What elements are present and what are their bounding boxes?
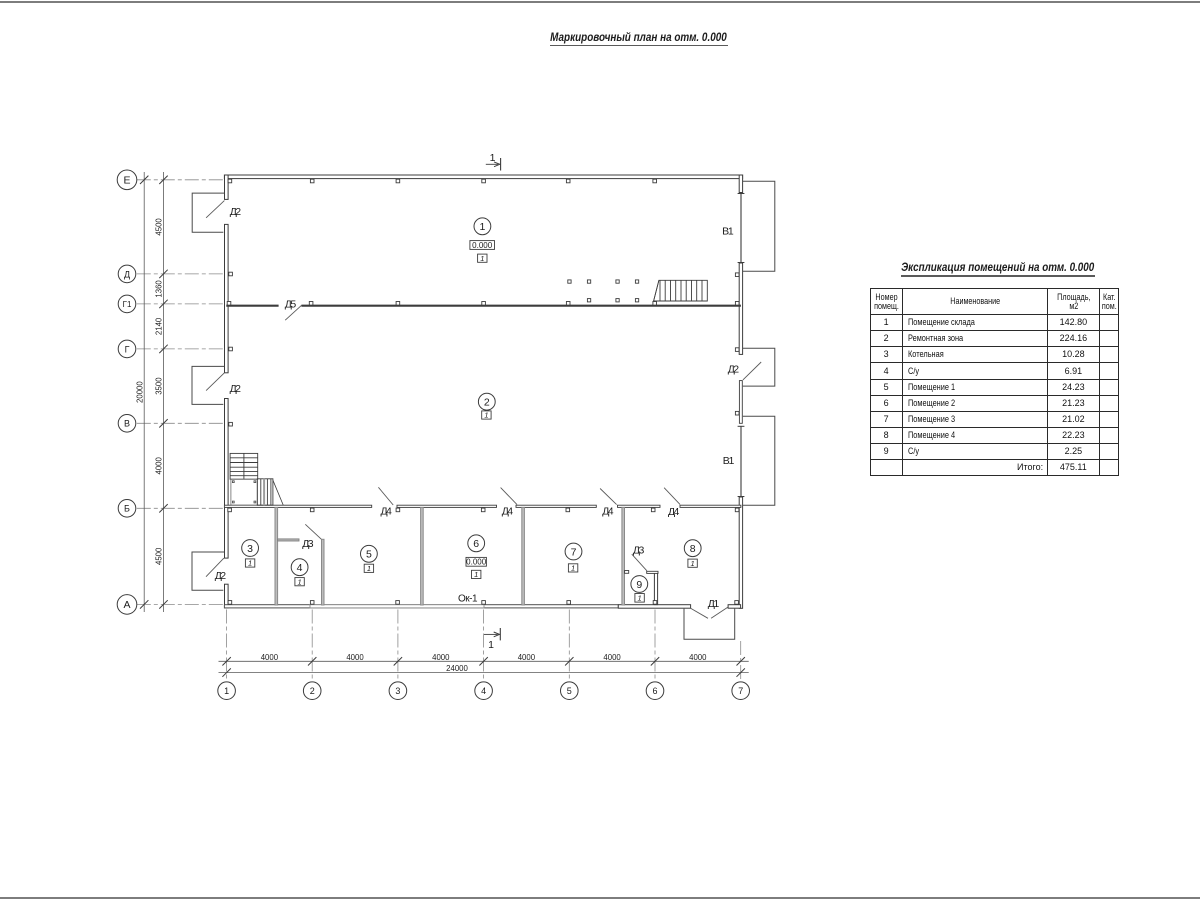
svg-text:Д2: Д2: [230, 383, 242, 395]
svg-text:1: 1: [638, 594, 642, 603]
svg-text:4500: 4500: [155, 547, 164, 565]
svg-text:1: 1: [224, 686, 229, 696]
svg-text:Е: Е: [123, 175, 130, 187]
svg-text:Г: Г: [125, 344, 130, 354]
svg-text:9: 9: [636, 579, 642, 591]
svg-text:1: 1: [298, 577, 302, 586]
svg-text:Д2: Д2: [728, 363, 740, 375]
svg-text:4000: 4000: [689, 653, 707, 662]
svg-text:Д1: Д1: [708, 598, 720, 610]
svg-text:4000: 4000: [603, 653, 621, 662]
svg-text:1: 1: [691, 559, 695, 568]
svg-text:1: 1: [474, 570, 478, 579]
svg-text:2140: 2140: [155, 317, 164, 335]
svg-text:Ок-1: Ок-1: [458, 594, 478, 605]
svg-text:4000: 4000: [261, 653, 279, 662]
svg-text:5: 5: [366, 549, 372, 561]
svg-text:6: 6: [473, 538, 479, 550]
svg-text:1: 1: [488, 639, 494, 651]
svg-text:Д3: Д3: [633, 544, 645, 556]
svg-text:А: А: [123, 599, 130, 611]
svg-text:1: 1: [367, 564, 371, 573]
svg-text:4000: 4000: [432, 653, 450, 662]
svg-text:0.000: 0.000: [472, 241, 493, 250]
svg-text:Д2: Д2: [215, 570, 227, 582]
svg-text:4000: 4000: [346, 653, 364, 662]
svg-text:4000: 4000: [518, 653, 536, 662]
svg-text:Д3: Д3: [302, 538, 314, 550]
svg-text:Д4: Д4: [602, 506, 614, 518]
svg-text:Д4: Д4: [502, 506, 514, 518]
svg-text:0.000: 0.000: [466, 558, 487, 567]
svg-text:2: 2: [310, 686, 315, 696]
svg-text:1: 1: [480, 254, 484, 263]
svg-text:В1: В1: [722, 225, 734, 237]
svg-text:6: 6: [652, 686, 657, 696]
svg-text:3500: 3500: [155, 377, 164, 395]
svg-text:1360: 1360: [155, 280, 164, 298]
svg-text:Д4: Д4: [381, 506, 393, 518]
svg-text:5: 5: [567, 686, 572, 696]
svg-text:3: 3: [395, 686, 400, 696]
svg-text:7: 7: [738, 686, 743, 696]
svg-text:В: В: [124, 419, 130, 429]
svg-text:4500: 4500: [155, 218, 164, 236]
svg-text:Г1: Г1: [123, 300, 132, 309]
svg-text:4: 4: [481, 686, 486, 696]
svg-text:Д4: Д4: [668, 506, 680, 518]
svg-text:4: 4: [297, 562, 303, 574]
svg-text:Д5: Д5: [285, 299, 297, 311]
svg-text:В1: В1: [723, 455, 735, 467]
svg-text:1: 1: [571, 564, 575, 573]
svg-text:3: 3: [247, 543, 253, 555]
svg-text:4000: 4000: [155, 456, 164, 474]
svg-text:7: 7: [571, 546, 577, 558]
svg-text:1: 1: [484, 411, 488, 420]
svg-text:2: 2: [484, 397, 490, 409]
svg-text:Б: Б: [124, 504, 130, 514]
svg-text:1: 1: [479, 221, 485, 233]
svg-text:20000: 20000: [135, 381, 144, 403]
svg-text:8: 8: [690, 543, 696, 555]
svg-text:Д: Д: [124, 269, 130, 279]
svg-text:Д2: Д2: [230, 206, 242, 218]
svg-text:24000: 24000: [446, 664, 468, 673]
svg-text:1: 1: [248, 559, 252, 568]
